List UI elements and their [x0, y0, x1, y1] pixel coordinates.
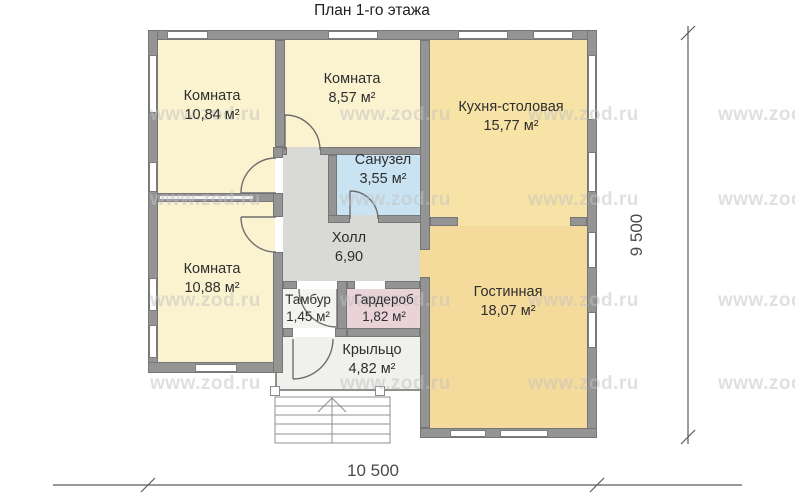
wall	[570, 217, 587, 226]
wall	[385, 281, 420, 289]
stairs-steps	[275, 397, 390, 443]
window	[328, 31, 378, 39]
wall	[283, 328, 293, 337]
wall	[273, 147, 283, 158]
window	[458, 31, 508, 39]
window	[588, 152, 596, 192]
window	[195, 364, 237, 372]
window	[450, 430, 486, 437]
room-area: 4,82 м²	[302, 360, 442, 379]
watermark: www.zod.ru	[718, 290, 795, 312]
watermark: www.zod.ru	[150, 189, 261, 211]
room-area: 3,55 м²	[313, 170, 453, 189]
room-name: Санузел	[313, 151, 453, 170]
living-label: Гостинная 18,07 м²	[428, 283, 588, 321]
room-name: Холл	[279, 229, 419, 248]
watermark: www.zod.ru	[528, 189, 639, 211]
dimension-height-label: 9 500	[627, 203, 663, 267]
room-name: Кухня-столовая	[426, 98, 596, 117]
porch-post	[270, 386, 280, 396]
stairs	[275, 397, 390, 443]
watermark: www.zod.ru	[718, 104, 795, 126]
wall	[347, 281, 355, 289]
wall	[283, 281, 297, 289]
dimension-height-line	[681, 26, 695, 444]
room-name: Гостинная	[428, 283, 588, 302]
floor-plan: План 1-го этажа	[0, 0, 795, 496]
room-name: Комната	[282, 70, 422, 89]
hall-label: Холл 6,90	[279, 229, 419, 267]
room2-label: Комната 8,57 м²	[282, 70, 422, 108]
wall	[273, 193, 283, 217]
kitchen-label: Кухня-столовая 15,77 м²	[426, 98, 596, 136]
window	[149, 325, 157, 358]
window	[588, 312, 596, 348]
window	[149, 162, 157, 192]
plan-title: План 1-го этажа	[272, 2, 472, 20]
watermark: www.zod.ru	[150, 373, 261, 395]
window	[500, 430, 548, 437]
bathroom-label: Санузел 3,55 м²	[313, 151, 453, 189]
room-name: Крыльцо	[302, 341, 442, 360]
room1-label: Комната 10,84 м²	[142, 87, 282, 125]
room-area: 8,57 м²	[282, 89, 422, 108]
room-area: 10,84 м²	[142, 106, 282, 125]
watermark: www.zod.ru	[718, 373, 795, 395]
room-area: 15,77 м²	[426, 117, 596, 136]
porch-label: Крыльцо 4,82 м²	[302, 341, 442, 379]
living-opening-floor	[420, 250, 430, 277]
room-name: Комната	[142, 87, 282, 106]
wall	[430, 217, 458, 226]
wall	[347, 328, 420, 337]
room-area: 18,07 м²	[428, 302, 588, 321]
wall	[335, 328, 347, 337]
room-name: Комната	[142, 260, 282, 279]
watermark: www.zod.ru	[340, 189, 451, 211]
window	[167, 31, 208, 39]
living-floor	[430, 226, 587, 428]
room-area: 6,90	[279, 248, 419, 267]
watermark: www.zod.ru	[718, 189, 795, 211]
window	[588, 232, 596, 268]
wall	[328, 215, 350, 223]
dimension-width-label: 10 500	[313, 461, 433, 481]
watermark: www.zod.ru	[528, 373, 639, 395]
window	[533, 31, 573, 39]
